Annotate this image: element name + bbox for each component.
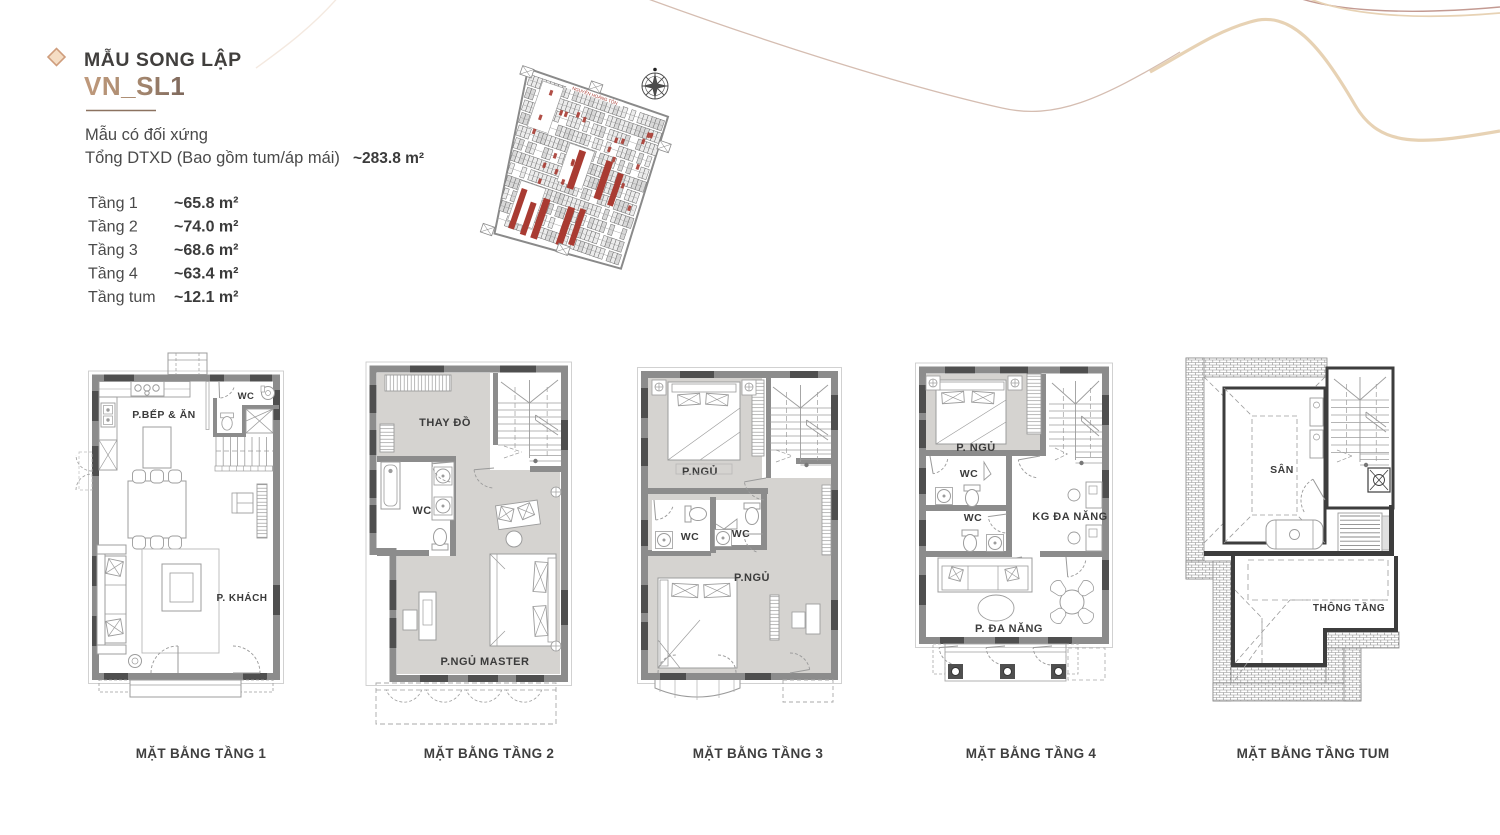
svg-text:P.NGỦ: P.NGỦ [682,465,718,478]
svg-text:WC: WC [960,468,979,480]
svg-text:THÔNG TẦNG: THÔNG TẦNG [1313,601,1385,614]
svg-text:Tầng tum: Tầng tum [88,289,156,306]
svg-text:MẪU SONG LẬP: MẪU SONG LẬP [84,47,242,71]
svg-text:WC: WC [964,512,983,524]
svg-text:~12.1 m²: ~12.1 m² [174,289,238,306]
svg-text:P. ĐA NĂNG: P. ĐA NĂNG [975,622,1043,635]
svg-text:MẶT BẰNG TẦNG TUM: MẶT BẰNG TẦNG TUM [1237,746,1390,761]
svg-text:P. KHÁCH: P. KHÁCH [216,591,267,604]
svg-text:VN_SL1: VN_SL1 [84,71,185,101]
svg-text:KG ĐA NĂNG: KG ĐA NĂNG [1032,510,1107,523]
svg-text:WC: WC [681,531,700,543]
svg-text:P. NGỦ: P. NGỦ [956,441,995,454]
svg-text:THAY ĐỒ: THAY ĐỒ [419,416,471,429]
svg-text:~74.0 m²: ~74.0 m² [174,219,238,236]
svg-text:MẶT BẰNG TẦNG 4: MẶT BẰNG TẦNG 4 [966,746,1097,761]
svg-text:MẶT BẰNG TẦNG 3: MẶT BẰNG TẦNG 3 [693,746,824,761]
svg-text:WC: WC [238,391,255,402]
svg-text:Tầng 3: Tầng 3 [88,242,138,259]
svg-text:~63.4 m²: ~63.4 m² [174,266,238,283]
svg-text:WC: WC [412,505,431,517]
svg-text:Tầng 4: Tầng 4 [88,266,138,283]
svg-text:MẶT BẰNG TẦNG 1: MẶT BẰNG TẦNG 1 [136,746,267,761]
svg-text:P.BẾP & ĂN: P.BẾP & ĂN [132,408,196,421]
svg-text:Mẫu có đối xứng: Mẫu có đối xứng [85,125,208,144]
svg-text:~68.6 m²: ~68.6 m² [174,242,238,259]
svg-text:WC: WC [732,528,751,540]
svg-text:Tầng 2: Tầng 2 [88,219,138,236]
svg-text:P.NGỦ: P.NGỦ [734,571,770,584]
svg-text:SÂN: SÂN [1270,463,1294,476]
svg-text:~283.8 m²: ~283.8 m² [353,150,424,167]
svg-text:~65.8 m²: ~65.8 m² [174,195,238,212]
svg-text:P.NGỦ MASTER: P.NGỦ MASTER [441,655,530,668]
svg-text:Tầng 1: Tầng 1 [88,195,138,212]
svg-text:MẶT BẰNG TẦNG 2: MẶT BẰNG TẦNG 2 [424,746,555,761]
svg-text:Tổng DTXD (Bao gồm tum/áp mái): Tổng DTXD (Bao gồm tum/áp mái) [85,149,340,167]
